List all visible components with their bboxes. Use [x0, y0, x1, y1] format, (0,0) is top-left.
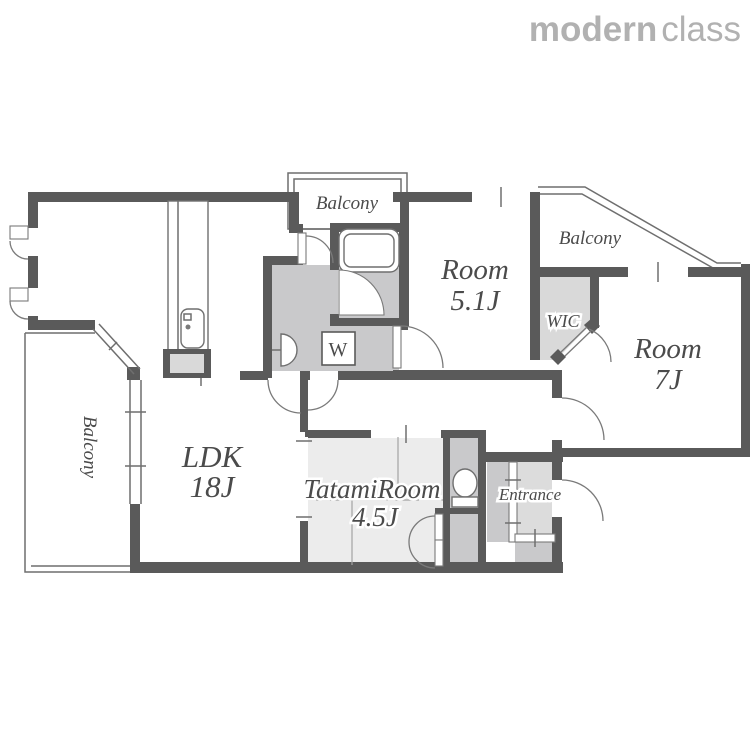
wall — [530, 277, 540, 360]
wall — [552, 370, 562, 398]
door-arc-washroom-hall — [308, 380, 338, 410]
tatami-label: TatamiRoom — [303, 474, 440, 504]
balcony-left-outline — [25, 333, 133, 572]
balcony-left-label: Balcony — [79, 416, 100, 479]
wall — [240, 371, 268, 380]
brand-logo: modernclass — [529, 10, 741, 49]
door-arc-room51 — [401, 326, 443, 368]
floor-plan-page: Balcony Balcony Balcony Room 5.1J Room 7… — [0, 0, 750, 750]
door-leaf-room51 — [393, 326, 401, 368]
balcony-right-label: Balcony — [559, 228, 622, 249]
wall — [688, 267, 741, 277]
wall — [263, 256, 272, 378]
ldk-size: 18J — [190, 469, 236, 504]
wall — [530, 192, 540, 267]
wall — [300, 378, 308, 432]
wall — [130, 562, 563, 573]
room51-label: Room — [440, 254, 509, 286]
casement-leaf — [10, 288, 28, 301]
door-arc-room7 — [562, 398, 604, 440]
tatami-door-leaf — [435, 514, 443, 540]
wall — [28, 192, 292, 202]
window-diagonal — [93, 324, 140, 374]
wall — [530, 267, 628, 277]
wall — [443, 508, 450, 566]
wall — [478, 438, 486, 568]
entrance-label: Entrance — [498, 485, 562, 504]
brand-logo-bold: modern — [529, 10, 657, 49]
toilet-tank — [452, 497, 478, 507]
wall — [130, 504, 140, 562]
wall — [330, 318, 408, 326]
room7-size: 7J — [654, 364, 683, 396]
door-arc-washroom-ldk — [268, 380, 301, 413]
wall — [741, 264, 750, 457]
wall — [305, 430, 371, 438]
wall — [28, 320, 95, 330]
wall — [441, 430, 486, 438]
kitchen-drain — [186, 325, 191, 330]
wall — [289, 224, 303, 233]
casement-arc — [10, 301, 28, 319]
floor-plan: Balcony Balcony Balcony Room 5.1J Room 7… — [0, 0, 750, 750]
wall — [393, 370, 557, 380]
door-gap-room7 — [552, 398, 562, 440]
door-arc-corridor — [306, 236, 333, 263]
wall — [400, 202, 409, 326]
washing-machine-label: W — [329, 339, 348, 361]
toilet-bowl — [453, 469, 477, 497]
wall — [338, 371, 393, 380]
wall — [552, 440, 562, 480]
wall — [28, 256, 38, 288]
room-fills — [272, 265, 590, 568]
wall — [552, 448, 750, 457]
casement-leaf — [10, 226, 28, 239]
balcony-top-label: Balcony — [316, 193, 379, 214]
room51-size: 5.1J — [450, 285, 500, 317]
wall — [28, 192, 38, 228]
wall — [393, 192, 472, 202]
bathtub-inner — [344, 234, 394, 267]
wall — [300, 521, 308, 566]
brand-logo-light: class — [661, 10, 741, 49]
tatami-size: 4.5J — [352, 502, 400, 532]
storage-floor — [450, 514, 478, 563]
door-leaf-corridor — [298, 233, 306, 264]
door-arc-wic — [589, 329, 611, 362]
wic-label: WIC — [547, 311, 581, 331]
tatami-door-leaf — [435, 540, 443, 566]
door-arc-front — [562, 480, 603, 521]
wall — [486, 452, 563, 462]
stove-top — [170, 354, 204, 373]
window-ldk — [130, 380, 141, 504]
wall — [443, 438, 450, 510]
kitchen — [163, 201, 211, 378]
room7-label: Room — [633, 333, 702, 365]
casement-arc — [10, 241, 28, 259]
